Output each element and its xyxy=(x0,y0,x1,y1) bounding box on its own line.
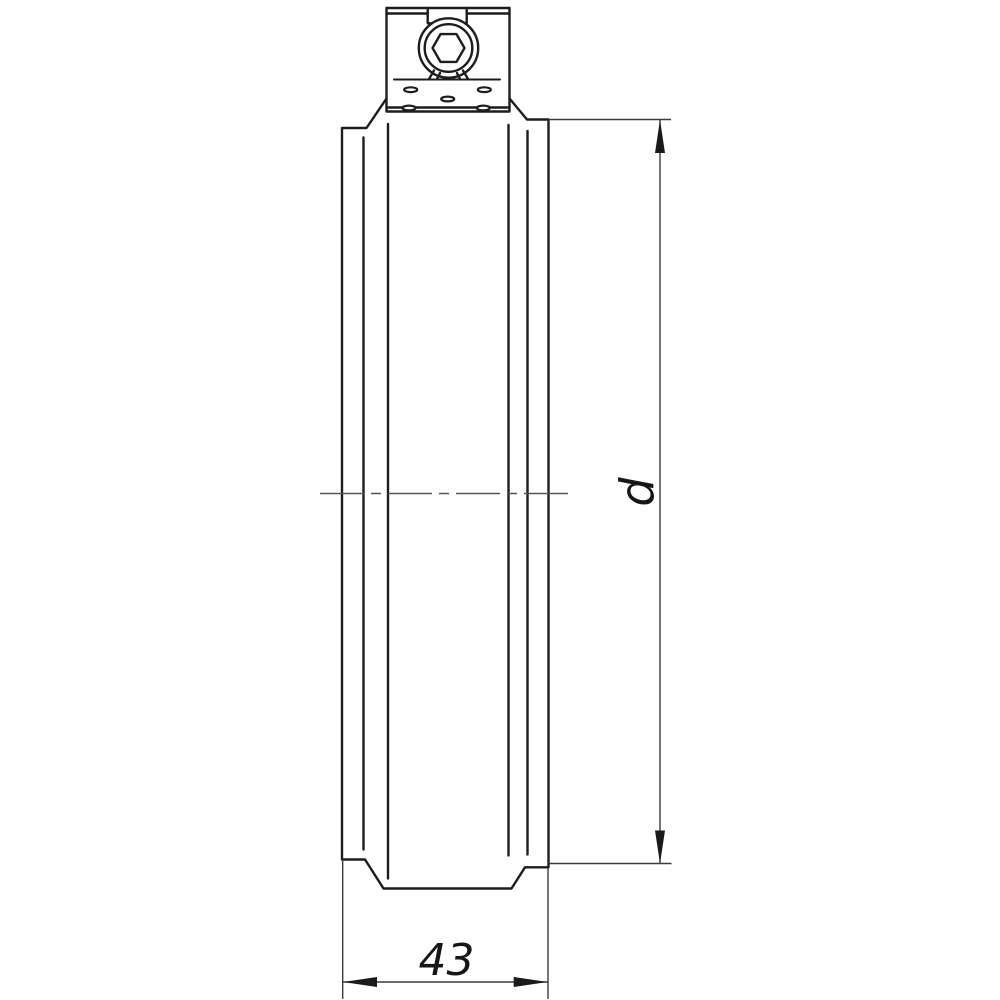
screw-head-outer-circle xyxy=(419,18,478,77)
technical-drawing-svg: d 43 xyxy=(0,0,1000,1000)
band-slot-hole xyxy=(441,97,454,102)
arrow-up-icon xyxy=(655,120,665,153)
arrow-right-icon xyxy=(514,977,548,987)
diameter-label: d xyxy=(611,477,665,507)
diameter-dimension: d xyxy=(549,120,672,865)
set-screw-head xyxy=(419,18,478,79)
band-slot-hole xyxy=(477,106,490,111)
arrow-left-icon xyxy=(343,977,377,987)
width-label: 43 xyxy=(419,935,475,986)
band-slot-hole xyxy=(403,106,416,111)
drawing-canvas: d 43 xyxy=(0,0,1000,1000)
band-slot-hole xyxy=(478,87,491,92)
band-slot-hole xyxy=(404,87,417,92)
arrow-down-icon xyxy=(655,831,665,864)
